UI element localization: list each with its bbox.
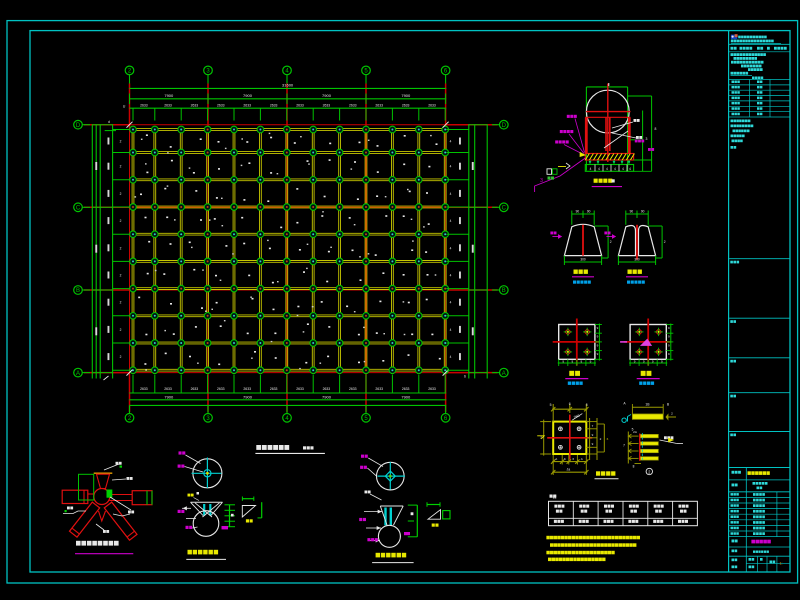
svg-text:2: 2 bbox=[120, 165, 122, 169]
svg-text:C: C bbox=[502, 206, 507, 212]
svg-text:9: 9 bbox=[668, 335, 670, 339]
svg-text:6: 6 bbox=[564, 457, 566, 461]
svg-text:5: 5 bbox=[550, 403, 552, 407]
svg-text:2: 2 bbox=[120, 328, 122, 332]
svg-text:2633: 2633 bbox=[164, 387, 172, 391]
svg-text:3: 3 bbox=[540, 178, 543, 184]
svg-text:2633: 2633 bbox=[140, 104, 148, 108]
svg-text:2633: 2633 bbox=[323, 104, 331, 108]
svg-text:2633: 2633 bbox=[243, 387, 251, 391]
svg-text:7900: 7900 bbox=[243, 93, 253, 98]
svg-text:C: C bbox=[76, 206, 81, 212]
svg-text:B: B bbox=[667, 403, 670, 407]
svg-text:8: 8 bbox=[633, 465, 635, 469]
svg-text:6: 6 bbox=[607, 437, 609, 441]
svg-text:2633: 2633 bbox=[243, 104, 251, 108]
svg-text:2: 2 bbox=[120, 192, 122, 196]
svg-text:2: 2 bbox=[120, 355, 122, 359]
svg-text:9: 9 bbox=[592, 442, 594, 446]
svg-text:1B: 1B bbox=[645, 403, 650, 407]
svg-text:4: 4 bbox=[450, 165, 452, 169]
svg-text:2633: 2633 bbox=[375, 387, 383, 391]
svg-text:7900: 7900 bbox=[322, 395, 332, 400]
svg-text:90: 90 bbox=[587, 210, 591, 214]
svg-text:4: 4 bbox=[450, 355, 452, 359]
svg-text:31600: 31600 bbox=[282, 83, 294, 88]
svg-text:2: 2 bbox=[120, 219, 122, 223]
svg-text:7900: 7900 bbox=[401, 395, 411, 400]
svg-text:2: 2 bbox=[120, 301, 122, 305]
svg-text:D: D bbox=[502, 123, 507, 129]
svg-text:4: 4 bbox=[450, 219, 452, 223]
svg-text:4: 4 bbox=[450, 274, 452, 278]
svg-text:2633: 2633 bbox=[349, 387, 357, 391]
svg-text:8: 8 bbox=[655, 127, 657, 131]
svg-text:A: A bbox=[555, 457, 557, 461]
svg-text:5: 5 bbox=[586, 403, 588, 407]
svg-text:2: 2 bbox=[120, 140, 122, 144]
svg-text:2633: 2633 bbox=[349, 104, 357, 108]
svg-text:Ja: Ja bbox=[567, 467, 571, 471]
svg-text:2633: 2633 bbox=[375, 104, 383, 108]
svg-text:D: D bbox=[76, 123, 81, 129]
svg-text:2633: 2633 bbox=[428, 104, 436, 108]
svg-text:2: 2 bbox=[648, 469, 651, 474]
svg-text:7900: 7900 bbox=[401, 93, 411, 98]
svg-text:2633: 2633 bbox=[323, 387, 331, 391]
svg-text:2: 2 bbox=[664, 240, 666, 244]
svg-text:2633: 2633 bbox=[270, 104, 278, 108]
svg-text:4: 4 bbox=[606, 167, 608, 171]
svg-text:7: 7 bbox=[592, 424, 594, 428]
svg-text:9: 9 bbox=[592, 433, 594, 437]
svg-text:2633: 2633 bbox=[296, 104, 304, 108]
svg-text:2A: 2A bbox=[633, 430, 637, 434]
svg-text:9: 9 bbox=[597, 335, 599, 339]
svg-text:2: 2 bbox=[610, 240, 612, 244]
svg-text:6: 6 bbox=[464, 375, 466, 379]
svg-text:9: 9 bbox=[597, 326, 599, 330]
svg-text:90: 90 bbox=[641, 210, 645, 214]
svg-text:3: 3 bbox=[646, 137, 648, 141]
svg-text:4: 4 bbox=[450, 301, 452, 305]
svg-text:2633: 2633 bbox=[191, 387, 199, 391]
svg-text:B: B bbox=[502, 288, 506, 294]
svg-text:4: 4 bbox=[590, 167, 592, 171]
svg-text:1:: 1: bbox=[780, 562, 783, 566]
svg-text:2633: 2633 bbox=[217, 387, 225, 391]
svg-text:2: 2 bbox=[120, 246, 122, 250]
svg-text:4: 4 bbox=[450, 192, 452, 196]
svg-text:2: 2 bbox=[120, 274, 122, 278]
svg-text:A: A bbox=[502, 371, 506, 377]
svg-text:2633: 2633 bbox=[164, 104, 172, 108]
svg-text:2633: 2633 bbox=[140, 387, 148, 391]
svg-text:2633: 2633 bbox=[428, 387, 436, 391]
svg-text:4: 4 bbox=[598, 167, 600, 171]
svg-text:d: d bbox=[108, 120, 110, 124]
svg-text:2633: 2633 bbox=[296, 387, 304, 391]
svg-text:B: B bbox=[76, 288, 80, 294]
svg-text:2633: 2633 bbox=[191, 104, 199, 108]
svg-text:A: A bbox=[76, 371, 80, 377]
svg-text:9: 9 bbox=[597, 352, 599, 356]
svg-text:90: 90 bbox=[630, 210, 634, 214]
svg-text:4: 4 bbox=[622, 167, 624, 171]
svg-text:2633: 2633 bbox=[402, 104, 410, 108]
svg-text:2: 2 bbox=[600, 437, 602, 441]
svg-text:90: 90 bbox=[576, 210, 580, 214]
svg-text:A: A bbox=[623, 402, 626, 406]
svg-text:9: 9 bbox=[668, 326, 670, 330]
svg-text:4: 4 bbox=[614, 167, 616, 171]
svg-text:7900: 7900 bbox=[164, 93, 174, 98]
svg-text:2: 2 bbox=[671, 412, 673, 416]
svg-text:2633: 2633 bbox=[270, 387, 278, 391]
svg-text:9: 9 bbox=[668, 352, 670, 356]
svg-text:4: 4 bbox=[450, 140, 452, 144]
svg-text:4: 4 bbox=[450, 246, 452, 250]
svg-text:7900: 7900 bbox=[322, 93, 332, 98]
svg-text:9: 9 bbox=[668, 343, 670, 347]
svg-text:4: 4 bbox=[450, 328, 452, 332]
svg-text:300: 300 bbox=[634, 258, 640, 262]
svg-text:7900: 7900 bbox=[243, 395, 253, 400]
svg-text:2633: 2633 bbox=[402, 387, 410, 391]
svg-text:7900: 7900 bbox=[164, 395, 174, 400]
svg-text:U: U bbox=[123, 105, 126, 109]
svg-text:300: 300 bbox=[580, 258, 586, 262]
svg-text:4: 4 bbox=[629, 167, 631, 171]
svg-text:2633: 2633 bbox=[217, 104, 225, 108]
svg-text:9: 9 bbox=[597, 343, 599, 347]
svg-text:6: 6 bbox=[572, 457, 574, 461]
svg-text:A: A bbox=[581, 457, 583, 461]
svg-text:7: 7 bbox=[623, 444, 625, 448]
svg-text:6: 6 bbox=[569, 402, 571, 406]
